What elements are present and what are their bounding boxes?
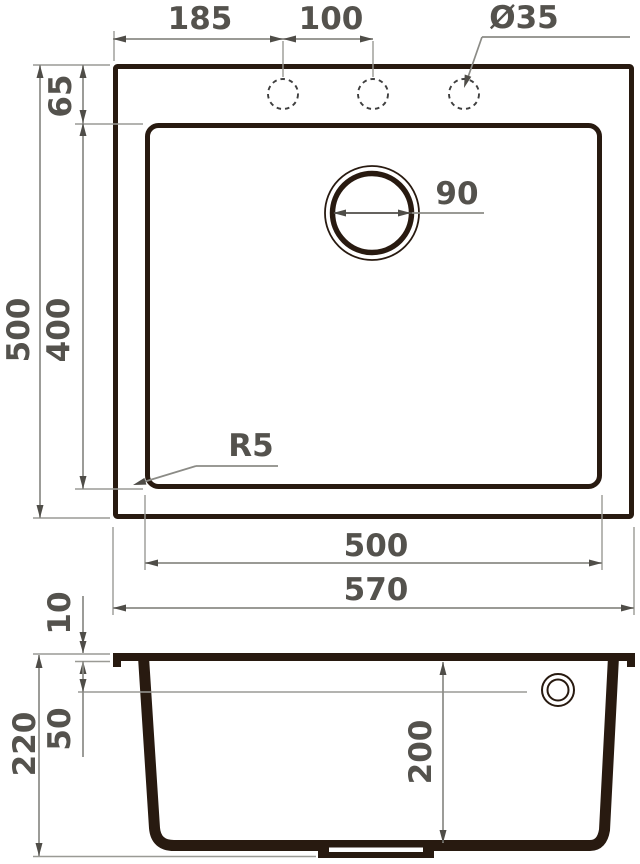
- dim-bowl-depth: 200: [403, 662, 447, 843]
- dim-label-d35: Ø35: [489, 0, 559, 36]
- dim-label-90: 90: [435, 176, 478, 212]
- arrowhead: [80, 65, 87, 78]
- drain-recess-groove: [329, 848, 423, 853]
- callout-corner-radius: R5: [133, 428, 278, 485]
- bowl-outline: [148, 126, 600, 487]
- dim-bottom-widths: 500 570: [113, 495, 634, 615]
- dim-label-200: 200: [403, 720, 439, 785]
- sink-technical-drawing: 90 185 100 Ø35: [0, 0, 640, 864]
- rim-flange: [113, 653, 635, 661]
- overflow-inner-circle: [548, 680, 569, 701]
- top-view: 90 185 100 Ø35: [1, 0, 634, 615]
- arrowhead: [80, 123, 87, 136]
- callout-hole-diameter: Ø35: [464, 0, 630, 88]
- arrowhead: [283, 36, 296, 43]
- dim-label-500-left: 500: [1, 298, 37, 363]
- faucet-hole-dashed-circle-2: [358, 79, 388, 109]
- arrowhead: [621, 605, 634, 612]
- arrowhead: [80, 476, 87, 489]
- dim-label-570: 570: [344, 572, 409, 608]
- dim-label-r5: R5: [228, 428, 273, 464]
- dim-label-400: 400: [41, 298, 77, 363]
- arrowhead: [270, 36, 283, 43]
- arrowhead: [80, 679, 87, 692]
- dim-overflow-drop: 50: [42, 661, 87, 757]
- dim-label-100: 100: [299, 1, 364, 37]
- arrowhead: [113, 605, 126, 612]
- dim-label-500-bottom: 500: [344, 528, 409, 564]
- arrowhead: [80, 110, 87, 123]
- dim-overall-height: 220: [7, 655, 316, 857]
- dim-left-stack: 65 400 500: [1, 65, 143, 518]
- leader-line: [145, 466, 196, 482]
- arrowhead: [589, 560, 602, 567]
- rim-lip-left: [113, 653, 121, 667]
- dim-label-50: 50: [42, 707, 78, 750]
- dim-rim-thickness: 10: [33, 591, 110, 674]
- section-view: 10 50 220 200: [7, 591, 635, 858]
- dim-label-220: 220: [7, 712, 43, 777]
- dim-label-185: 185: [168, 1, 233, 37]
- arrowhead: [133, 478, 146, 485]
- arrowhead: [36, 655, 43, 668]
- leader-line: [467, 37, 483, 82]
- rim-lip-right: [627, 653, 635, 667]
- dim-label-65: 65: [43, 74, 79, 117]
- faucet-hole-dashed-circle-3: [449, 79, 479, 109]
- faucet-hole-dashed-circle-1: [268, 79, 298, 109]
- arrowhead: [440, 662, 447, 675]
- arrowhead: [36, 843, 43, 856]
- dim-label-10: 10: [42, 591, 78, 634]
- arrowhead: [37, 505, 44, 518]
- arrowhead: [113, 36, 126, 43]
- arrowhead: [145, 560, 158, 567]
- outer-rim-outline: [116, 67, 632, 517]
- drawing-svg: 90 185 100 Ø35: [0, 0, 640, 864]
